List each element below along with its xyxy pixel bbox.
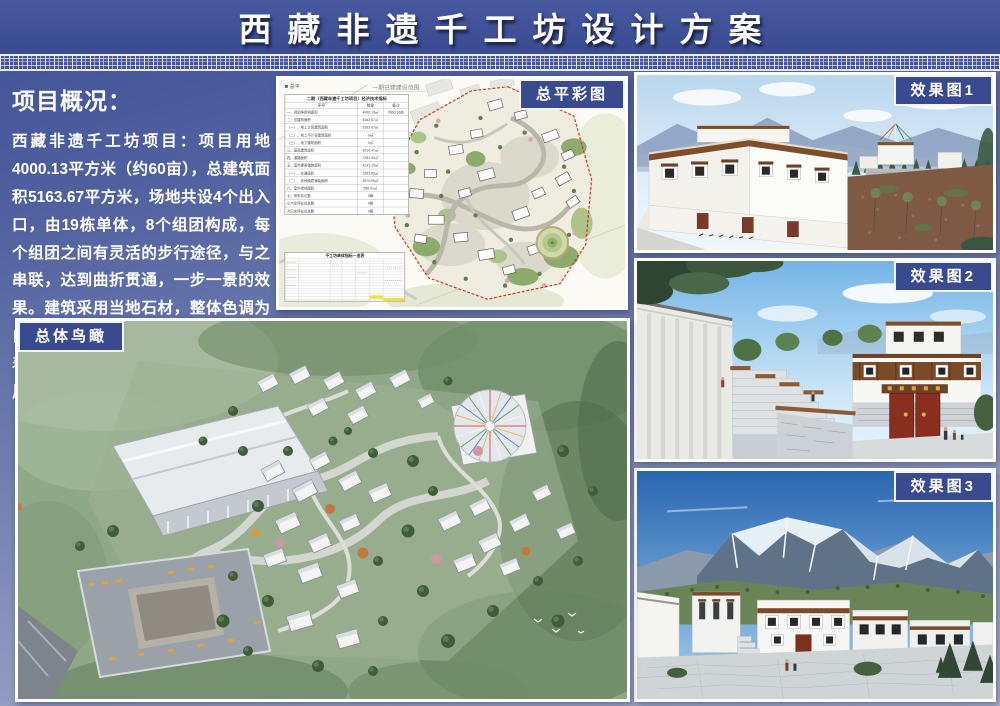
overview-heading: 项目概况： bbox=[12, 82, 270, 116]
aerial-illustration bbox=[18, 321, 627, 699]
siteplan-panel: 总平彩图 bbox=[276, 76, 628, 310]
col-header: 备注 bbox=[392, 103, 400, 108]
table-cell: （二）、地上不计容建筑面积 bbox=[287, 132, 332, 137]
table-cell: 三、基底建筑面积 bbox=[287, 148, 315, 153]
table-cell: 六、室外绿地面积 bbox=[287, 186, 315, 191]
indicator-table: 二期（西藏非遗千工坊项目）经济技术指标 序号 数量 备注 bbox=[285, 95, 409, 215]
table-cell: 小汽车停车位总数 bbox=[287, 201, 315, 206]
render3-label-badge: 效果图3 bbox=[894, 471, 993, 502]
table-cell: 2879.90㎡ bbox=[363, 178, 379, 183]
table-cell: 五、室外硬质铺装面积 bbox=[287, 163, 322, 168]
render2-label-badge: 效果图2 bbox=[894, 261, 993, 292]
table-cell: 约60.16亩 bbox=[388, 110, 404, 115]
col-header: 序号 bbox=[318, 103, 326, 108]
siteplan-corner-note: 总平 bbox=[290, 83, 300, 90]
table-cell: 5163.67㎡ bbox=[363, 117, 379, 122]
legend-square-icon bbox=[285, 85, 288, 88]
table-cell: 0辆 bbox=[368, 208, 374, 213]
table-cell: （一）、地上计容建筑面积 bbox=[287, 125, 329, 130]
poster-page: 西藏非遗千工坊设计方案 项目概况： 西藏非遗千工坊项目：项目用地4000.13平… bbox=[0, 0, 1000, 706]
unit-table: 千工坊单体指标一览表 bbox=[285, 252, 405, 301]
table-cell: （二）、其他硬质铺装面积 bbox=[287, 178, 329, 183]
table-cell: 七、停车总位数 bbox=[287, 193, 312, 198]
table-cell: 四、道路面积 bbox=[287, 155, 308, 160]
table-cell: 0㎡ bbox=[368, 132, 374, 137]
table-cell: 二、总建筑面积 bbox=[287, 117, 312, 122]
indicator-table-title: 二期（西藏非遗千工坊项目）经济技术指标 bbox=[307, 95, 388, 102]
left-building bbox=[637, 301, 732, 459]
siteplan-illustration: 总平 一期已建建设范围 二期（西藏非遗千工坊项目）经济技术指标 bbox=[279, 79, 625, 307]
unit-table-title: 千工坊单体指标一览表 bbox=[325, 253, 364, 258]
render1-label-badge: 效果图1 bbox=[894, 75, 993, 106]
circular-garden bbox=[537, 227, 568, 258]
table-cell: 大巴车停车位总数 bbox=[287, 208, 315, 213]
col-header: 数量 bbox=[367, 103, 375, 108]
table-cell: 3214.47㎡ bbox=[363, 148, 379, 153]
table-cell: 0㎡ bbox=[368, 140, 374, 145]
table-cell: 5163.67㎡ bbox=[363, 125, 379, 130]
table-cell: 0辆 bbox=[368, 193, 374, 198]
table-cell: （一）、车道面积 bbox=[287, 170, 315, 175]
phase-note: 一期已建建设范围 bbox=[372, 84, 419, 92]
table-cell: 4233.15㎡ bbox=[363, 163, 379, 168]
tibetan-border-pattern bbox=[0, 54, 1000, 71]
table-cell: （三）、地下建筑面积 bbox=[287, 140, 322, 145]
siteplan-label-badge: 总平彩图 bbox=[519, 79, 625, 110]
table-cell: 556.91㎡ bbox=[363, 186, 377, 191]
render2-panel: 效果图2 bbox=[634, 258, 996, 462]
table-cell: 2781.34㎡ bbox=[363, 155, 379, 160]
radial-roof-hall bbox=[451, 390, 537, 465]
poster-title-band: 西藏非遗千工坊设计方案 bbox=[0, 0, 1000, 54]
table-cell: 0辆 bbox=[368, 201, 374, 206]
render3-illustration bbox=[637, 471, 993, 699]
render3-panel: 效果图3 bbox=[634, 468, 996, 702]
poster-title: 西藏非遗千工坊设计方案 bbox=[223, 3, 778, 51]
table-cell: 1353.82㎡ bbox=[363, 170, 379, 175]
table-cell: 4000.13㎡ bbox=[363, 110, 379, 115]
aerial-label-badge: 总体鸟瞰 bbox=[18, 321, 124, 352]
foreground-field bbox=[848, 165, 993, 250]
aerial-panel: 总体鸟瞰 bbox=[15, 318, 630, 702]
table-cell: 一、规划净用地面积 bbox=[287, 110, 318, 115]
render1-panel: 效果图1 bbox=[634, 72, 996, 253]
